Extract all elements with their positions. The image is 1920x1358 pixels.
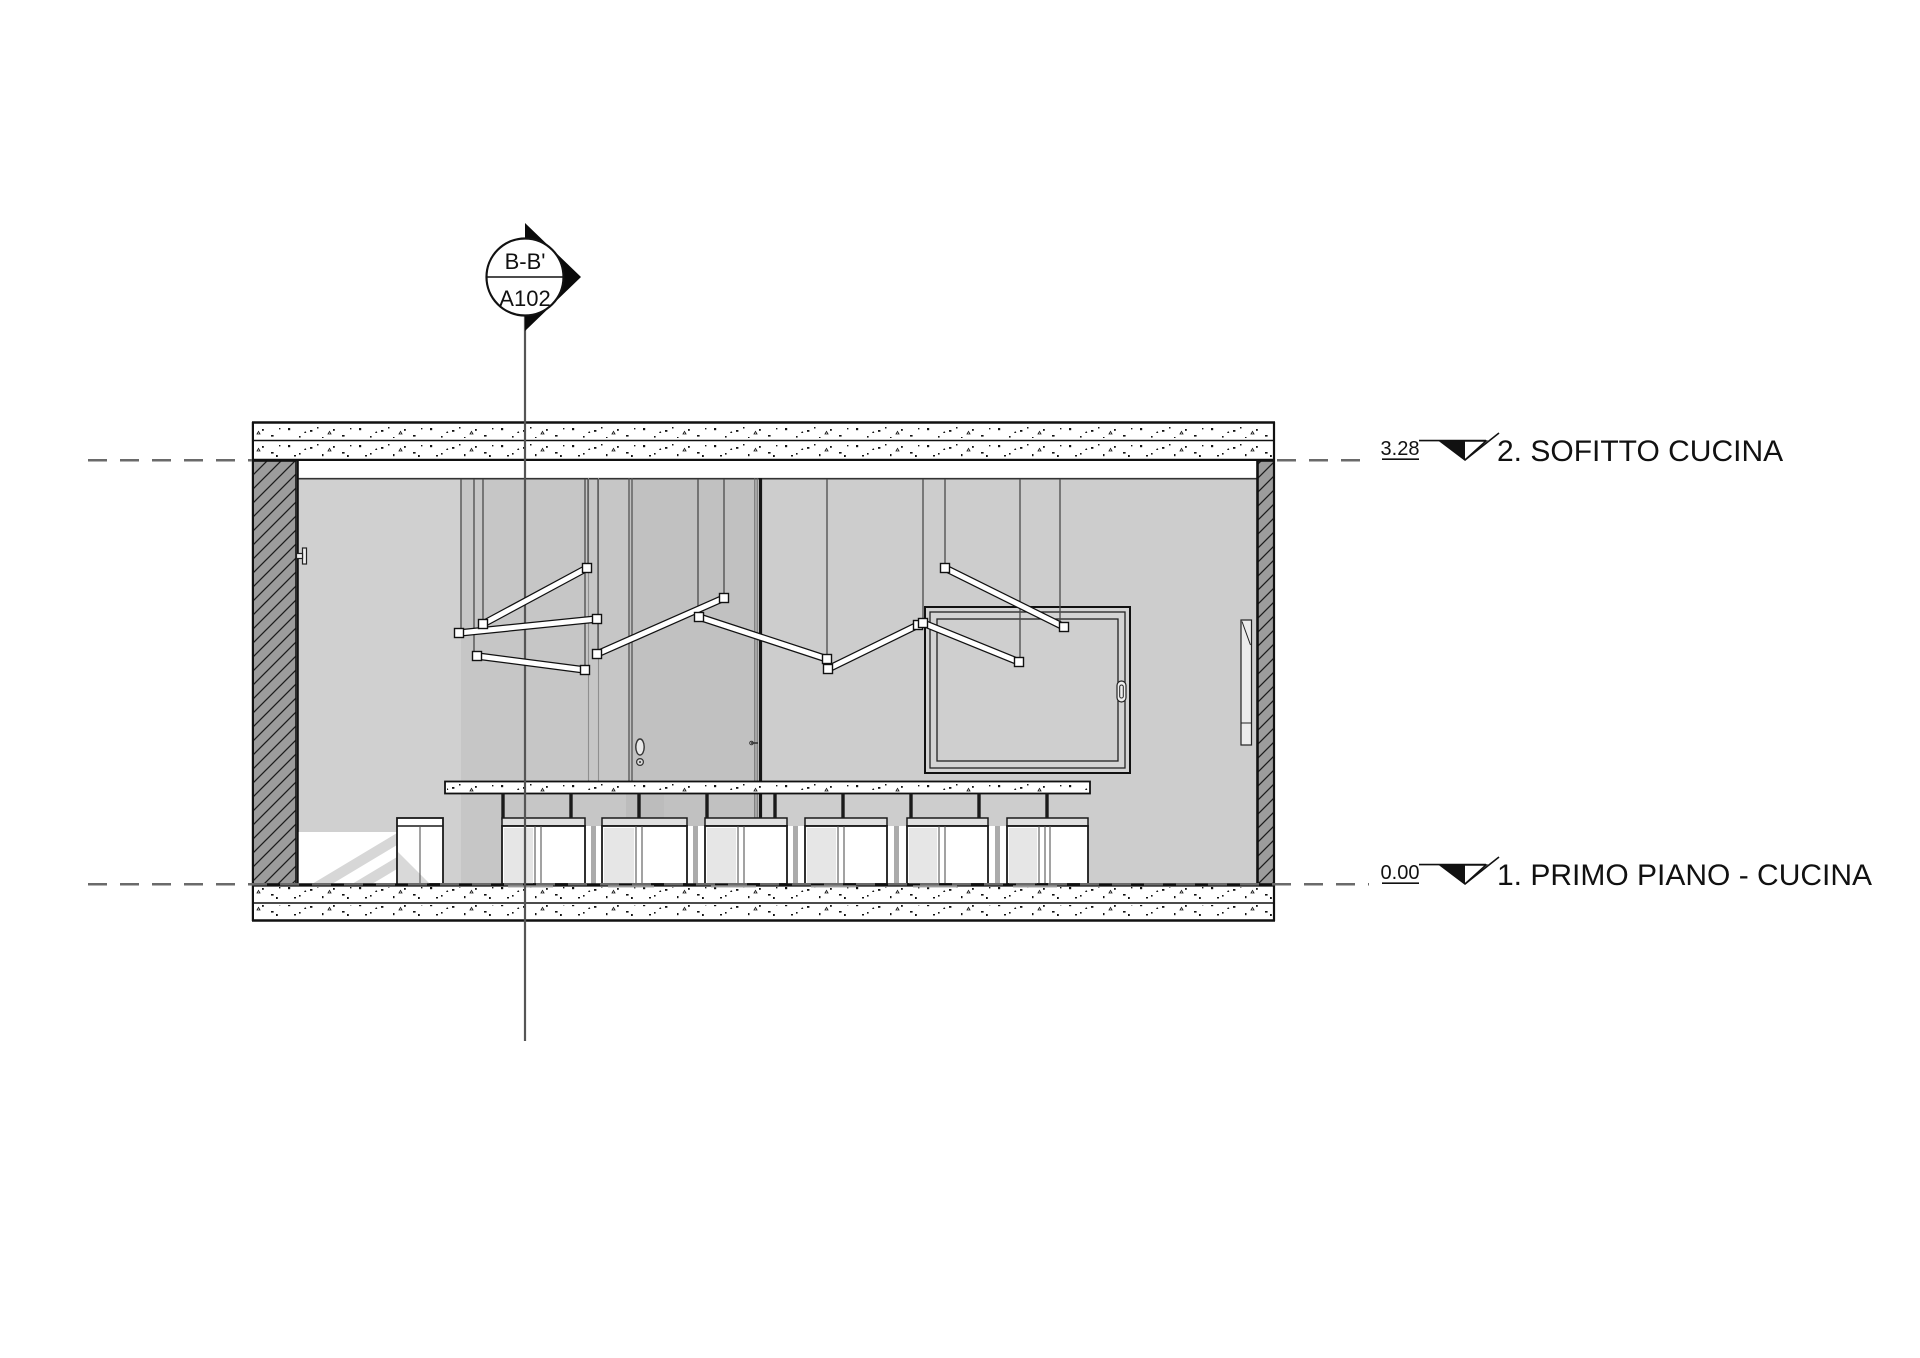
cabinet-unit bbox=[1007, 818, 1088, 887]
window bbox=[925, 607, 1130, 773]
under-counter-shadow bbox=[626, 794, 664, 818]
kitchen-counter bbox=[445, 782, 1090, 794]
section-detail-number: B-B' bbox=[505, 249, 546, 274]
level-name-bottom: 1. PRIMO PIANO - CUCINA bbox=[1497, 859, 1872, 892]
building-section bbox=[252, 422, 1275, 921]
cabinet-unit bbox=[907, 818, 988, 887]
ceiling-slab bbox=[252, 422, 1275, 460]
cabinet-unit bbox=[705, 818, 787, 887]
section-sheet-number: A102 bbox=[499, 286, 550, 311]
ceiling-strip bbox=[297, 461, 1258, 478]
level-elevation-top: 3.28 bbox=[1381, 438, 1420, 460]
cabinet-unit bbox=[805, 818, 887, 887]
drawing-canvas: 3.28 2. SOFITTO CUCINA 0.00 1. PRIMO PIA… bbox=[0, 0, 1920, 1358]
window-handle-icon bbox=[1117, 681, 1126, 702]
floor-slab bbox=[252, 885, 1275, 921]
right-wall-board bbox=[1241, 620, 1252, 745]
level-name-top: 2. SOFITTO CUCINA bbox=[1497, 435, 1783, 468]
level-annotation-top[interactable]: 3.28 2. SOFITTO CUCINA bbox=[1381, 433, 1784, 468]
section-view: 3.28 2. SOFITTO CUCINA 0.00 1. PRIMO PIA… bbox=[0, 0, 1920, 1358]
section-marker[interactable]: B-B' A102 bbox=[487, 223, 582, 331]
right-wall-cut bbox=[1258, 461, 1274, 884]
left-wall-cut bbox=[253, 461, 296, 884]
level-annotation-bottom[interactable]: 0.00 1. PRIMO PIANO - CUCINA bbox=[1381, 857, 1873, 892]
door-handle-icon bbox=[636, 739, 644, 765]
cabinet-unit bbox=[502, 818, 585, 887]
cabinet-unit bbox=[602, 818, 687, 887]
cabinet-unit bbox=[397, 818, 443, 884]
level-elevation-bottom: 0.00 bbox=[1381, 862, 1420, 884]
floor-shadow-left bbox=[299, 832, 397, 884]
